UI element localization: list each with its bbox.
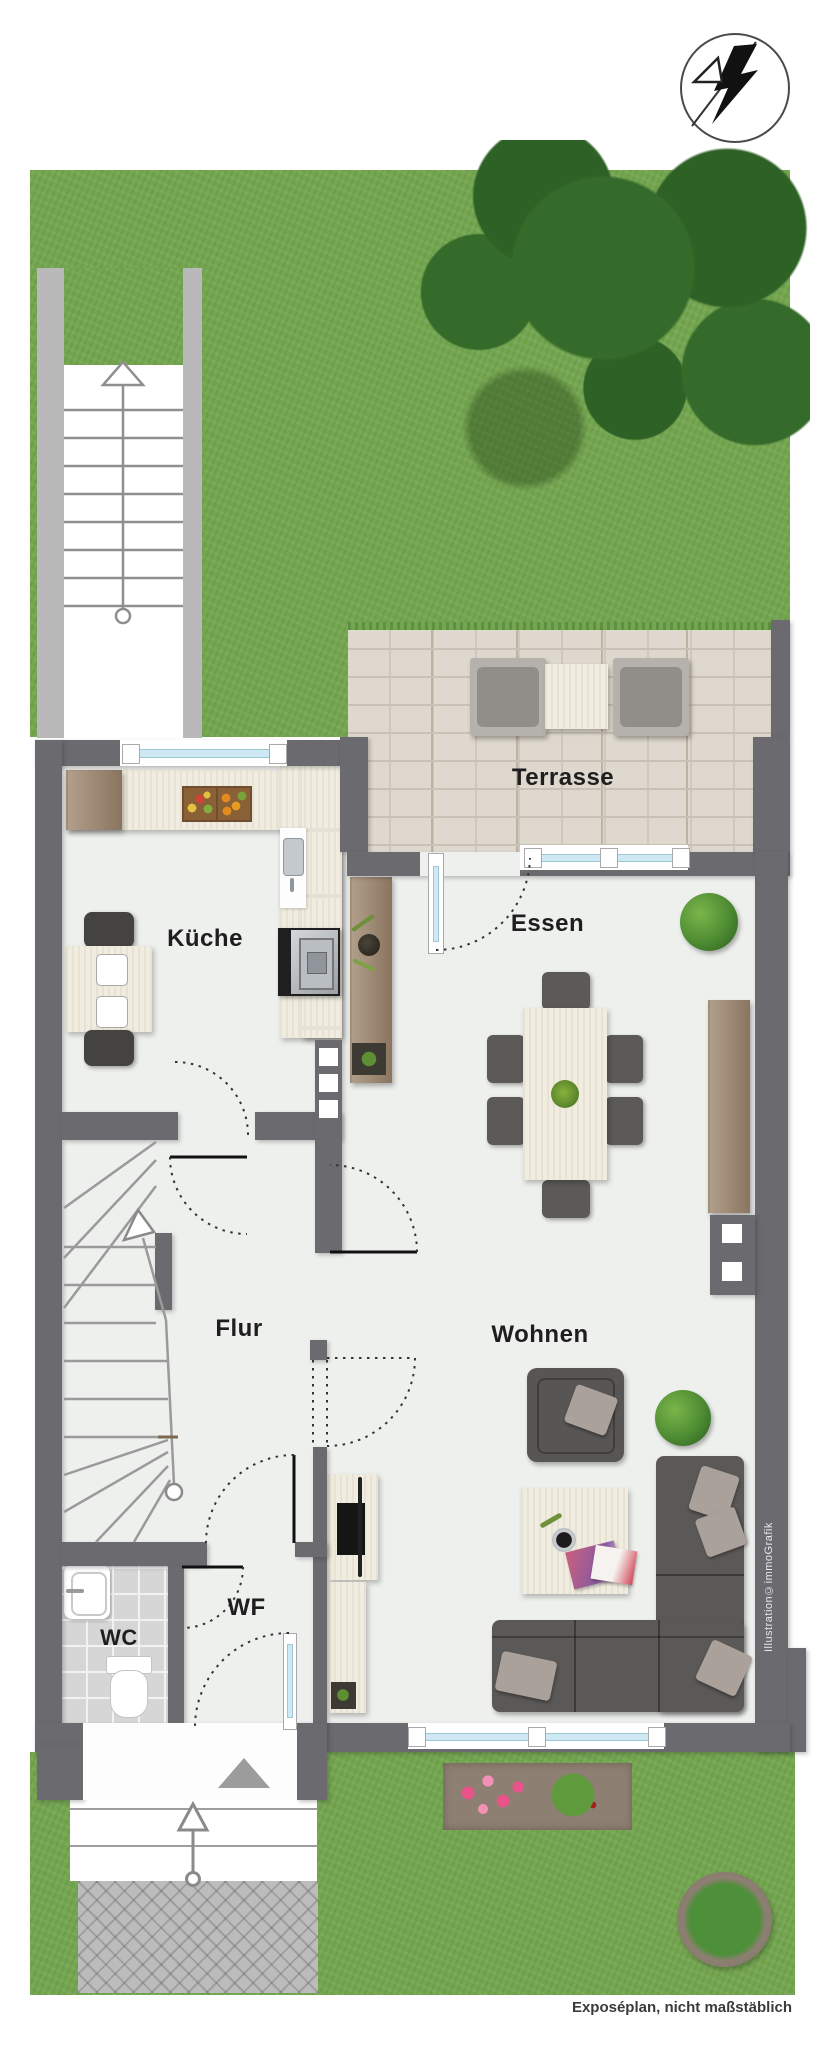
stair-direction-arrow-icon [124,1210,154,1240]
room-label-essen: Essen [460,910,635,938]
room-label-flur: Flur [154,1315,324,1343]
room-label-terrasse: Terrasse [478,764,648,792]
room-label-wohnen: Wohnen [450,1321,630,1349]
north-arrow-icon [676,28,796,152]
door-leaves [170,1157,417,1567]
room-label-wc: WC [69,1625,169,1651]
door-and-stair-overlay [0,0,822,2048]
floor-plan: Terrasse Küche Essen Flur Wohnen WF WC I… [0,0,822,2048]
interior-stair-railing [124,1210,182,1500]
room-label-kueche: Küche [120,925,290,953]
plan-caption: Exposéplan, nicht maßstäblich [480,1999,792,2016]
room-label-wf: WF [199,1594,294,1622]
illustration-credit: Illustration©immoGrafik [756,1492,782,1682]
